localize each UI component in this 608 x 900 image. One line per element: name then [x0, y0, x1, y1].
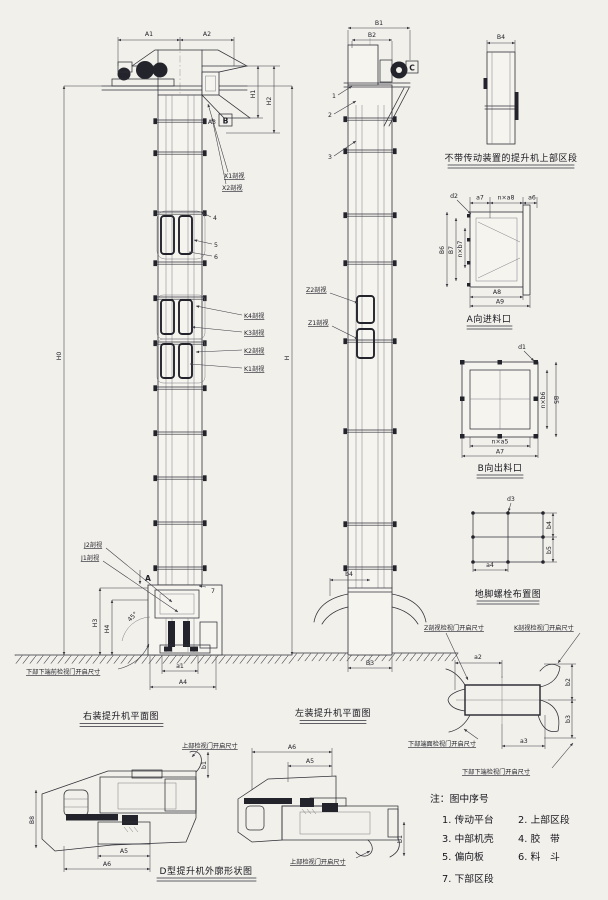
- dim-h4: H4: [104, 625, 111, 634]
- callout-3: 3: [328, 154, 332, 161]
- outlet-caption: B向出料口: [478, 462, 523, 474]
- section-c-label: C: [409, 64, 415, 73]
- callout-k1: K1剖视: [244, 365, 264, 373]
- dim-a6: a6: [528, 195, 536, 202]
- dim-a7-seg: a7: [476, 195, 484, 202]
- door-opening-detail: a2 b2 b3 a3 Z剖视检视门开启尺寸 K剖视检视门开启尺寸 下部端面检视…: [408, 624, 580, 776]
- dim-a9-inlet: A9: [496, 299, 504, 306]
- z-door-size-label: Z剖视检视门开启尺寸: [424, 624, 484, 632]
- right-elevation-view: B A3 X1剖视 X2剖视 4 5 6 K4剖视 K3剖视 K2剖视 K1剖视: [26, 31, 292, 727]
- inlet-detail: d2 a7 n×a8 a6 B6 B7 n×b7 A8 A9 A向进料口: [439, 193, 537, 329]
- dim-a1-bottom: a1: [176, 663, 184, 670]
- notes-block: 注：图中序号 1. 传动平台 2. 上部区段 3. 中部机壳 4. 胶 带 5.…: [430, 792, 570, 885]
- upper-section-caption: 不带传动装置的提升机上部区段: [444, 152, 577, 164]
- note-item-4: 4. 胶 带: [518, 832, 560, 845]
- dim-a4-bolts: a4: [486, 562, 494, 569]
- callout-z2: Z2剖视: [306, 286, 327, 294]
- dim-a2-top: A2: [203, 31, 211, 38]
- callout-j1: J1剖视: [80, 554, 99, 562]
- note-item-6: 6. 料 斗: [518, 850, 560, 863]
- note-item-7: 7. 下部区段: [442, 872, 494, 885]
- dim-h1: H1: [250, 90, 257, 99]
- dim-b5-outlet: B5: [552, 396, 559, 404]
- dim-b2-door: b2: [565, 678, 572, 686]
- outlet-detail: d1 n×b6 B5 n×a5 A7 B向出料口: [460, 344, 559, 478]
- right-view-caption: 右装提升机平面图: [83, 710, 159, 722]
- dim-b1-plan1: b1: [201, 761, 208, 769]
- dim-d1: d1: [518, 344, 526, 351]
- dim-angle: 45°: [126, 610, 139, 623]
- outline-plan-left: A6 A5 b1 上部检视门开启尺寸: [238, 744, 404, 866]
- dim-a5-plan2: A5: [306, 758, 314, 765]
- note-item-2: 2. 上部区段: [518, 813, 570, 826]
- dim-b1-top: B1: [375, 20, 383, 27]
- dim-b1-plan2: b1: [397, 835, 404, 843]
- dim-d3: d3: [507, 496, 515, 503]
- dim-a2-door: a2: [474, 654, 482, 661]
- dim-a7-outlet: A7: [496, 449, 504, 456]
- note-item-3: 3. 中部机壳: [442, 832, 494, 845]
- callout-x2: X2剖视: [222, 184, 243, 192]
- dim-nb7-inlet: n×b7: [457, 240, 464, 257]
- dim-d2: d2: [450, 193, 458, 200]
- note-item-5: 5. 偏向板: [442, 850, 484, 863]
- dim-h2: H2: [266, 97, 273, 106]
- dim-a6-plan2: A6: [288, 744, 296, 751]
- upper-door-label-2: 上部检视门开启尺寸: [290, 858, 346, 866]
- bucket-elevator-drawing: B A3 X1剖视 X2剖视 4 5 6 K4剖视 K3剖视 K2剖视 K1剖视: [0, 0, 608, 900]
- dim-h3: H3: [92, 619, 99, 628]
- left-view-caption: 左装提升机平面图: [295, 707, 371, 719]
- ground-line-left: [15, 655, 292, 664]
- section-a-marker: A: [145, 574, 151, 583]
- callout-j2: J2剖视: [83, 541, 102, 549]
- callout-4: 4: [213, 215, 217, 222]
- dim-h: H: [284, 355, 291, 360]
- dim-na5-outlet: n×a5: [492, 439, 509, 446]
- upper-door-label-1: 上部检视门开启尺寸: [182, 742, 238, 750]
- dim-b2-top: B2: [368, 32, 376, 39]
- boot-section: [148, 585, 222, 655]
- dim-a3: A3: [208, 119, 216, 126]
- left-elevation-view: C 1 2 3 Z2剖视 Z1剖视 b4 B3 B1 B2 左装提升机平面图: [295, 20, 426, 724]
- note-item-1: 1. 传动平台: [442, 813, 494, 826]
- bottom-end-door-label: 下部下端检视门开启尺寸: [462, 768, 530, 776]
- dim-b4-flap: b4: [345, 571, 353, 578]
- callout-2: 2: [328, 112, 332, 119]
- notes-title: 注：图中序号: [430, 792, 489, 805]
- callout-k2: K2剖视: [244, 347, 264, 355]
- callout-z1: Z1剖视: [308, 319, 329, 327]
- boot-door-note: 下部下端前检视门开启尺寸: [26, 668, 100, 676]
- callout-k4: K4剖视: [244, 312, 264, 320]
- callout-6: 6: [214, 254, 218, 261]
- head-section: [102, 50, 247, 95]
- callout-x1: X1剖视: [224, 172, 245, 180]
- outline-caption: D型提升机外廓形状图: [160, 865, 253, 877]
- dim-a5-plan1: A5: [120, 848, 128, 855]
- callout-5: 5: [214, 242, 218, 249]
- engineering-drawing-sheet: B A3 X1剖视 X2剖视 4 5 6 K4剖视 K3剖视 K2剖视 K1剖视: [0, 0, 608, 900]
- callout-7: 7: [211, 588, 215, 595]
- section-b-label: B: [223, 117, 229, 126]
- dim-a3-door: a3: [520, 738, 528, 745]
- k-door-size-label: K剖视检视门开启尺寸: [514, 624, 574, 632]
- callout-k3: K3剖视: [244, 329, 264, 337]
- dim-b5-bolts: b5: [546, 546, 553, 554]
- anchor-bolt-layout: d3 b4 b5 a4 地脚螺栓布置图: [471, 496, 557, 604]
- outline-plan-right: b1 上部检视门开启尺寸 B8 A5 A6: [29, 742, 238, 872]
- dim-na8: n×a8: [498, 195, 515, 202]
- dim-a1-top: A1: [145, 31, 153, 38]
- bottom-face-door-label: 下部端面检视门开启尺寸: [408, 740, 476, 748]
- bolts-caption: 地脚螺栓布置图: [475, 588, 542, 600]
- dim-nb6-outlet: n×b6: [540, 391, 547, 408]
- dim-b7-inlet: B7: [448, 246, 455, 254]
- dim-b4-upper: B4: [497, 34, 505, 41]
- dim-b6-inlet: B6: [439, 246, 446, 254]
- dim-b8-plan1: B8: [29, 816, 36, 824]
- callout-1: 1: [332, 93, 336, 100]
- upper-section-detail: B4 不带传动装置的提升机上部区段: [444, 34, 577, 168]
- dim-a8-inlet: A8: [493, 289, 501, 296]
- dim-b3-door: b3: [565, 715, 572, 723]
- dim-a4-bottom: A4: [179, 679, 187, 686]
- dim-a6-plan1: A6: [103, 861, 111, 868]
- discharge-spout: [202, 66, 250, 118]
- dim-b3: B3: [366, 660, 374, 667]
- dim-b4-bolts: b4: [546, 521, 553, 529]
- inlet-caption: A向进料口: [467, 313, 512, 325]
- dim-h0: H0: [56, 352, 63, 361]
